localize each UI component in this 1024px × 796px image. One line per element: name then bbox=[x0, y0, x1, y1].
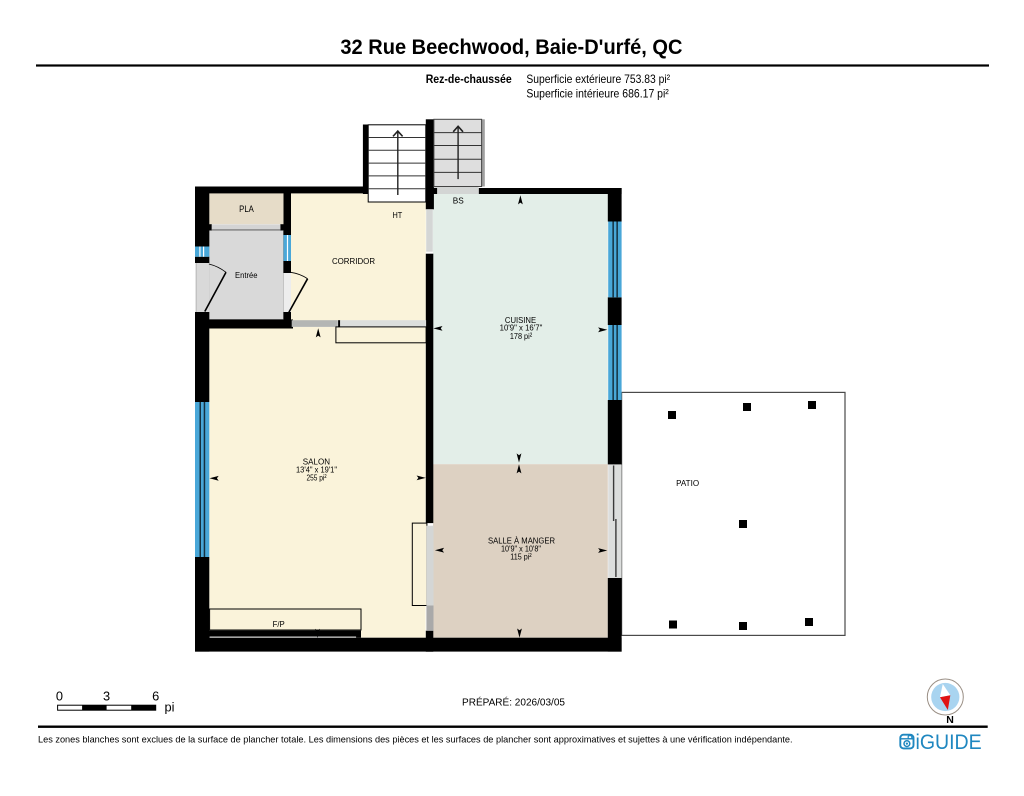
svg-text:0: 0 bbox=[56, 689, 63, 704]
svg-text:BS: BS bbox=[453, 196, 464, 206]
svg-text:N: N bbox=[946, 714, 954, 726]
svg-text:Superficie extérieure 753.83 p: Superficie extérieure 753.83 pi² bbox=[526, 72, 670, 86]
svg-text:6: 6 bbox=[152, 689, 159, 704]
svg-text:PATIO: PATIO bbox=[676, 478, 699, 488]
svg-text:Rez-de-chaussée: Rez-de-chaussée bbox=[426, 72, 512, 86]
svg-text:iGUIDE: iGUIDE bbox=[916, 731, 982, 754]
svg-text:Entrée: Entrée bbox=[235, 270, 258, 280]
svg-text:255 pi²: 255 pi² bbox=[307, 473, 327, 483]
svg-text:F/P: F/P bbox=[273, 619, 285, 629]
svg-text:PRÉPARÉ: 2026/03/05: PRÉPARÉ: 2026/03/05 bbox=[462, 696, 565, 709]
svg-text:pi: pi bbox=[165, 699, 175, 714]
svg-text:3: 3 bbox=[103, 689, 110, 704]
svg-text:Superficie intérieure 686.17 p: Superficie intérieure 686.17 pi² bbox=[526, 87, 668, 101]
svg-text:32 Rue Beechwood, Baie-D'urfé,: 32 Rue Beechwood, Baie-D'urfé, QC bbox=[340, 35, 682, 59]
svg-text:HT: HT bbox=[393, 210, 403, 220]
svg-text:Les zones blanches sont exclue: Les zones blanches sont exclues de la su… bbox=[38, 734, 793, 745]
svg-text:115 pi²: 115 pi² bbox=[510, 551, 532, 561]
svg-text:178 pi²: 178 pi² bbox=[510, 331, 532, 341]
svg-text:CORRIDOR: CORRIDOR bbox=[332, 256, 375, 266]
svg-text:PLA: PLA bbox=[239, 204, 254, 214]
